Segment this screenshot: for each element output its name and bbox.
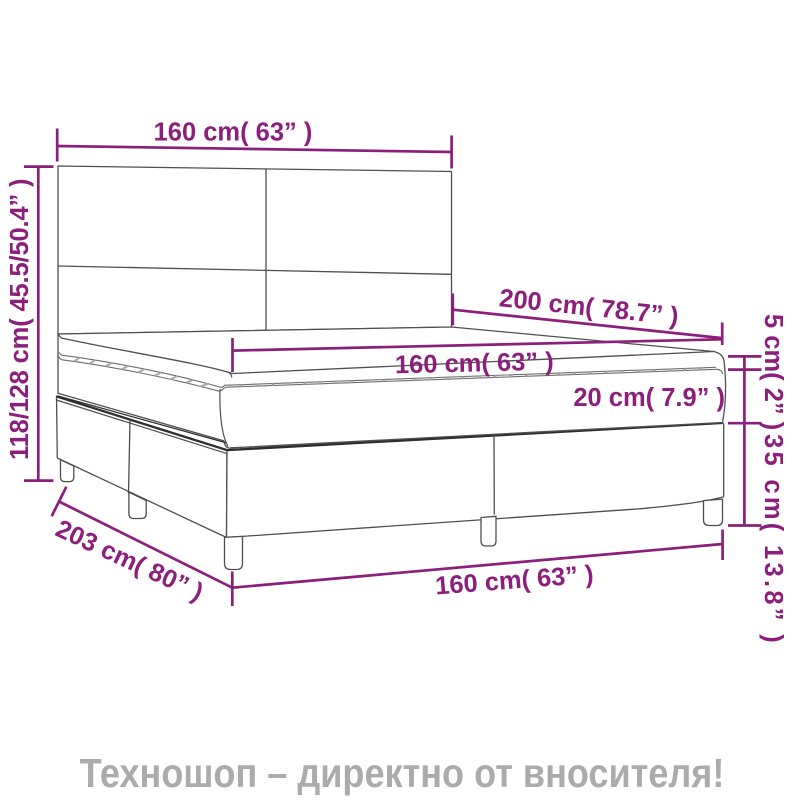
svg-text:160 cm( 63” ): 160 cm( 63” )	[154, 119, 313, 147]
svg-text:118/128 cm( 45.5/50.4” ): 118/128 cm( 45.5/50.4” )	[6, 179, 34, 460]
svg-text:160 cm( 63” ): 160 cm( 63” )	[395, 348, 554, 380]
svg-text:Техношоп – директно от вносите: Техношоп – директно от вносителя!	[80, 751, 725, 797]
svg-text:35 cm( 13.8” ): 35 cm( 13.8” )	[759, 434, 787, 646]
svg-text:20 cm( 7.9” ): 20 cm( 7.9” )	[573, 384, 725, 412]
svg-text:5 cm( 2” ): 5 cm( 2” )	[759, 314, 787, 430]
